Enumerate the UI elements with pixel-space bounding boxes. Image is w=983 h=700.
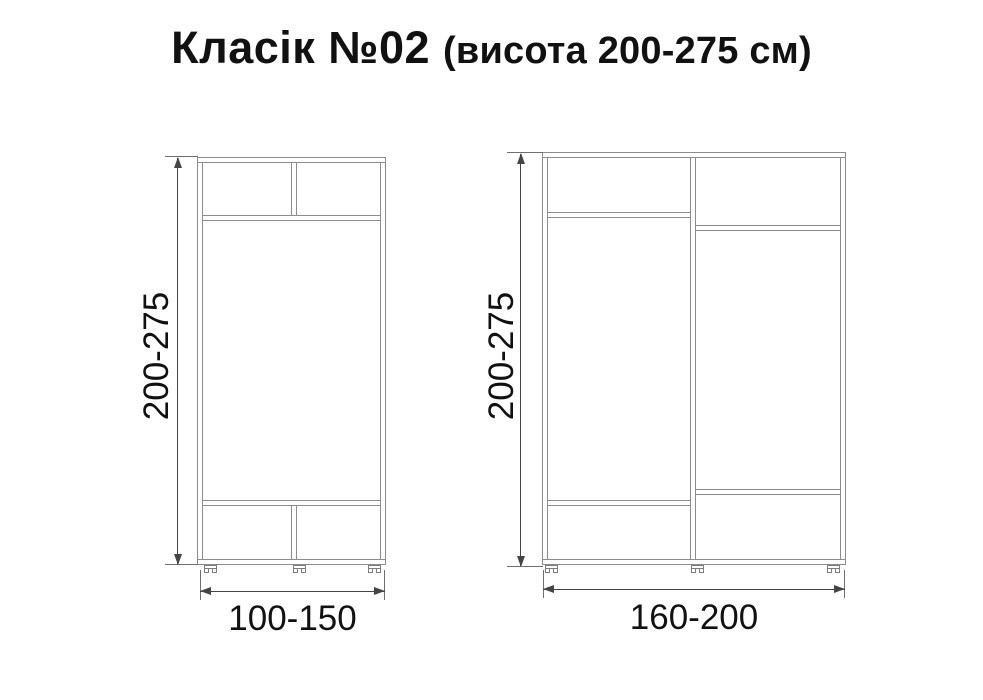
arrow-right-icon bbox=[834, 585, 845, 593]
wardrobe-foot bbox=[293, 565, 306, 569]
arrow-up-icon bbox=[517, 153, 525, 164]
width-dimension-line bbox=[200, 591, 385, 592]
right-cabinet-side-panel-right bbox=[840, 152, 846, 565]
width-dimension-label: 100-150 bbox=[200, 600, 385, 638]
arrow-up-icon bbox=[174, 157, 182, 168]
wardrobe-foot bbox=[204, 565, 217, 569]
wardrobe-foot bbox=[827, 565, 840, 569]
height-range-note: (висота 200-275 см) bbox=[443, 30, 812, 73]
wardrobe-foot bbox=[691, 565, 704, 569]
page: Класік №02 (висота 200-275 см) 200-275 1… bbox=[0, 0, 983, 700]
right-cabinet-right-bottom-shelf bbox=[695, 489, 841, 495]
right-cabinet-left-bottom-shelf bbox=[547, 500, 691, 506]
right-cabinet-left-top-shelf bbox=[547, 212, 691, 218]
product-name: Класік №02 bbox=[171, 22, 430, 74]
height-dimension-label: 200-275 bbox=[483, 256, 523, 456]
arrow-right-icon bbox=[374, 587, 385, 595]
wardrobe-foot bbox=[368, 565, 381, 569]
height-extension-line-bottom bbox=[507, 566, 543, 567]
right-cabinet-right-top-shelf bbox=[695, 225, 841, 231]
height-extension-line-top bbox=[507, 152, 543, 153]
height-dimension-label: 200-275 bbox=[138, 256, 178, 456]
width-extension-line-right bbox=[844, 570, 845, 598]
width-extension-line-right bbox=[384, 570, 385, 600]
page-title: Класік №02 (висота 200-275 см) bbox=[0, 22, 983, 74]
width-extension-line-left bbox=[543, 570, 544, 598]
arrow-down-icon bbox=[517, 556, 525, 567]
width-extension-line-left bbox=[200, 570, 201, 600]
wardrobe-foot bbox=[545, 565, 558, 569]
arrow-down-icon bbox=[174, 554, 182, 565]
arrow-left-icon bbox=[543, 585, 554, 593]
arrow-left-icon bbox=[200, 587, 211, 595]
left-cabinet-top-divider bbox=[291, 162, 297, 216]
left-cabinet-bottom-divider bbox=[291, 505, 297, 560]
width-dimension-line bbox=[543, 589, 845, 590]
width-dimension-label: 160-200 bbox=[543, 599, 845, 637]
